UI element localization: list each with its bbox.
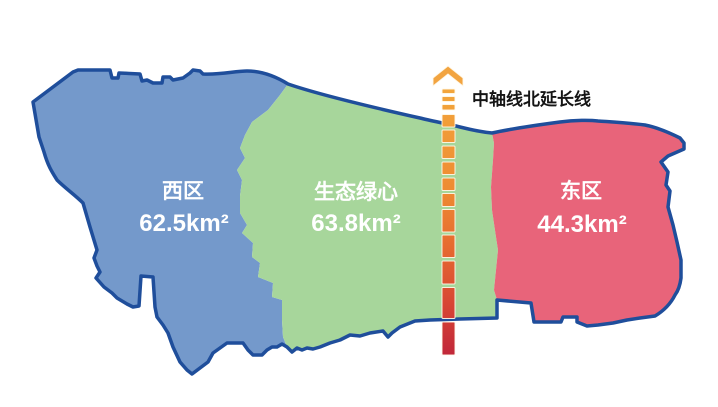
- west-district-area: 62.5km²: [139, 210, 228, 237]
- east-district-area: 44.3km²: [537, 211, 626, 238]
- axis-dash-segment: [442, 261, 455, 284]
- axis-dash-segment: [442, 146, 455, 159]
- axis-arrow-up-icon: [433, 66, 463, 86]
- infographic-map: 中轴线北延长线 西区 62.5km² 生态绿心 63.8km² 东区 44.3k…: [0, 0, 718, 407]
- axis-dash-segment: [442, 105, 455, 111]
- axis-dash-segment: [442, 288, 455, 319]
- axis-dash-segment: [442, 97, 455, 102]
- axis-dash-segment: [442, 130, 455, 143]
- axis-dash-segment: [442, 89, 455, 94]
- axis-dash-segment: [442, 235, 455, 258]
- axis-dash-segment: [442, 322, 455, 355]
- map-canvas: 中轴线北延长线 西区 62.5km² 生态绿心 63.8km² 东区 44.3k…: [0, 0, 718, 407]
- axis-label: 中轴线北延长线: [472, 89, 591, 109]
- east-district-name: 东区: [560, 179, 602, 203]
- axis-dash-segment: [442, 210, 455, 233]
- center-green-heart-name: 生态绿心: [314, 180, 398, 204]
- axis-dash-segment: [442, 115, 455, 128]
- axis-dash-segment: [442, 178, 455, 191]
- axis-dash-segment: [442, 162, 455, 175]
- axis-dash-segment: [442, 194, 455, 207]
- west-district-name: 西区: [162, 180, 204, 203]
- center-green-heart-area: 63.8km²: [311, 210, 400, 237]
